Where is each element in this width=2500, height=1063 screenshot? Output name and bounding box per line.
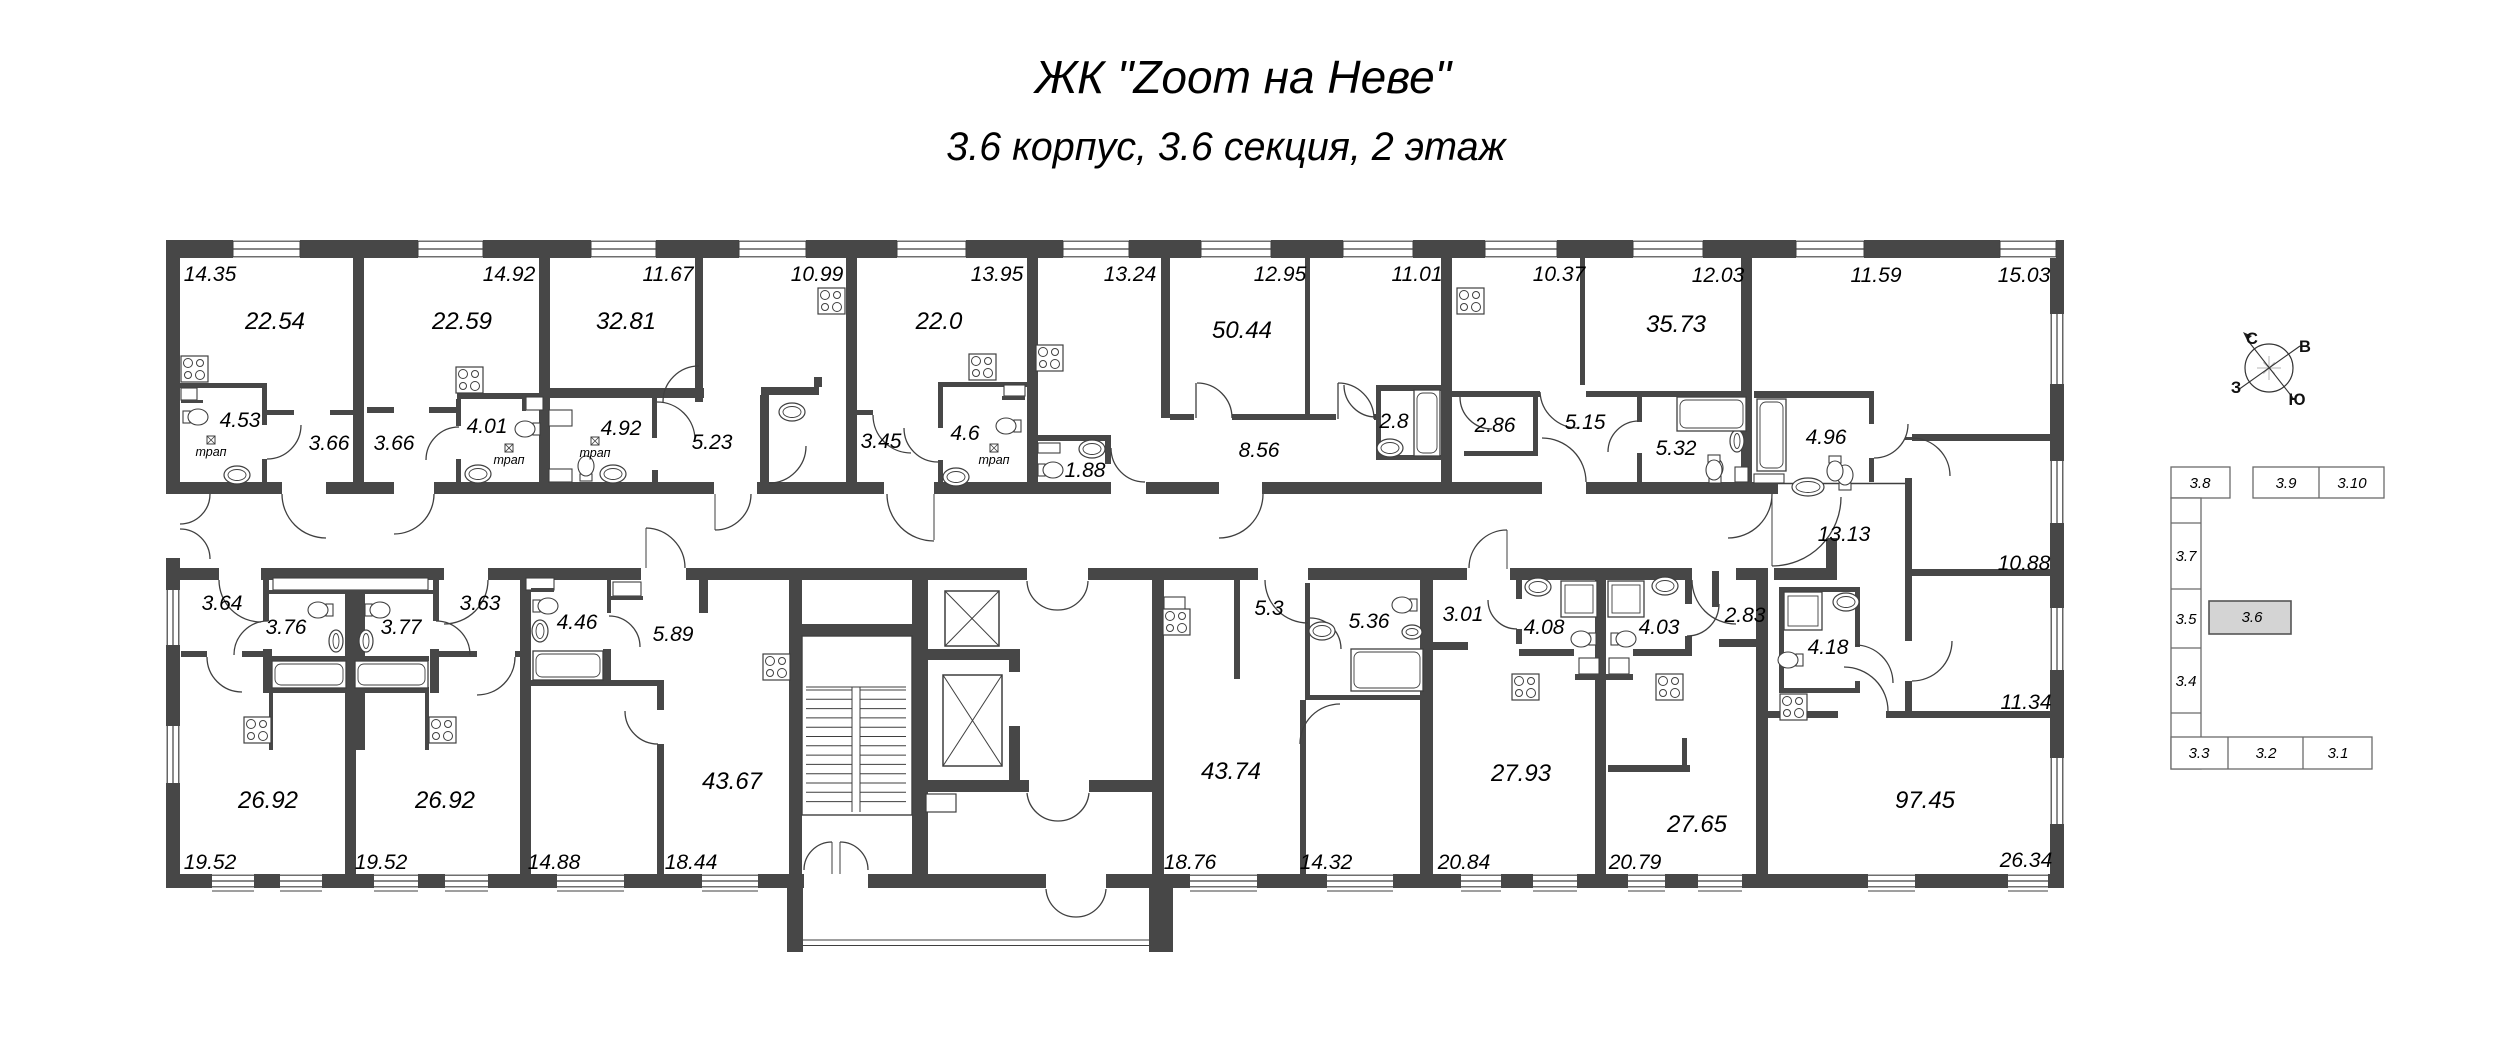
svg-text:43.74: 43.74 [1201, 758, 1261, 785]
svg-text:27.65: 27.65 [1666, 811, 1728, 838]
svg-text:трап: трап [196, 445, 227, 459]
svg-text:5.32: 5.32 [1656, 437, 1697, 460]
svg-text:4.92: 4.92 [601, 417, 642, 440]
svg-text:3.64: 3.64 [202, 592, 243, 615]
svg-text:3.3: 3.3 [2189, 745, 2211, 762]
svg-text:12.95: 12.95 [1254, 263, 1307, 286]
svg-text:12.03: 12.03 [1692, 264, 1745, 287]
svg-text:10.99: 10.99 [791, 263, 844, 286]
svg-text:3.4: 3.4 [2176, 673, 2197, 690]
svg-text:26.92: 26.92 [237, 787, 298, 814]
svg-text:22.54: 22.54 [244, 308, 305, 335]
svg-text:11.34: 11.34 [2001, 691, 2052, 714]
svg-text:32.81: 32.81 [596, 308, 656, 335]
svg-text:14.92: 14.92 [483, 263, 536, 286]
svg-text:2.8: 2.8 [1378, 410, 1409, 433]
svg-text:3.45: 3.45 [861, 430, 902, 453]
svg-text:3.6 корпус, 3.6 секция, 2 этаж: 3.6 корпус, 3.6 секция, 2 этаж [946, 125, 1507, 169]
svg-text:10.37: 10.37 [1533, 263, 1587, 286]
svg-text:18.76: 18.76 [1164, 851, 1217, 874]
svg-text:4.6: 4.6 [950, 422, 980, 445]
svg-text:Ю: Ю [2288, 391, 2305, 409]
svg-text:8.56: 8.56 [1239, 439, 1280, 462]
svg-text:3.63: 3.63 [460, 592, 501, 615]
svg-text:11.59: 11.59 [1851, 264, 1902, 287]
svg-text:43.67: 43.67 [702, 768, 764, 795]
svg-text:3.01: 3.01 [1443, 603, 1484, 626]
svg-text:14.88: 14.88 [528, 851, 581, 874]
svg-text:20.84: 20.84 [1437, 851, 1491, 874]
svg-text:трап: трап [494, 453, 525, 467]
svg-text:С: С [2246, 330, 2258, 348]
svg-text:3.1: 3.1 [2328, 745, 2349, 762]
svg-text:14.35: 14.35 [184, 263, 237, 286]
svg-text:4.46: 4.46 [557, 611, 598, 634]
svg-text:26.92: 26.92 [414, 787, 475, 814]
svg-text:3.2: 3.2 [2256, 745, 2278, 762]
svg-text:4.03: 4.03 [1639, 616, 1680, 639]
svg-text:3.77: 3.77 [381, 616, 423, 639]
svg-text:35.73: 35.73 [1646, 311, 1707, 338]
svg-text:2.86: 2.86 [1474, 414, 1516, 437]
svg-text:4.96: 4.96 [1806, 426, 1847, 449]
svg-text:19.52: 19.52 [184, 851, 237, 874]
svg-text:3.7: 3.7 [2176, 548, 2198, 565]
svg-text:4.18: 4.18 [1808, 636, 1849, 659]
svg-text:3.9: 3.9 [2276, 475, 2298, 492]
svg-text:4.53: 4.53 [220, 409, 261, 432]
svg-text:18.44: 18.44 [665, 851, 718, 874]
svg-text:11.67: 11.67 [643, 263, 695, 286]
svg-text:20.79: 20.79 [1608, 851, 1662, 874]
svg-text:трап: трап [580, 446, 611, 460]
svg-text:трап: трап [979, 453, 1010, 467]
svg-text:5.15: 5.15 [1565, 411, 1606, 434]
svg-text:13.24: 13.24 [1104, 263, 1157, 286]
svg-text:26.34: 26.34 [1999, 849, 2053, 872]
svg-text:5.89: 5.89 [653, 623, 694, 646]
svg-text:З: З [2231, 379, 2241, 397]
svg-text:5.3: 5.3 [1254, 597, 1284, 620]
svg-text:3.8: 3.8 [2190, 475, 2212, 492]
svg-text:3.6: 3.6 [2242, 609, 2264, 626]
svg-text:50.44: 50.44 [1212, 317, 1272, 344]
svg-text:27.93: 27.93 [1490, 760, 1552, 787]
svg-text:13.95: 13.95 [971, 263, 1024, 286]
svg-text:ЖК "Zoom на Неве": ЖК "Zoom на Неве" [1033, 51, 1454, 103]
svg-text:15.03: 15.03 [1998, 264, 2051, 287]
svg-text:3.66: 3.66 [374, 432, 415, 455]
svg-text:97.45: 97.45 [1895, 787, 1956, 814]
svg-text:14.32: 14.32 [1300, 851, 1353, 874]
svg-text:3.5: 3.5 [2176, 611, 2198, 628]
svg-text:19.52: 19.52 [355, 851, 408, 874]
svg-text:3.10: 3.10 [2337, 475, 2367, 492]
svg-text:В: В [2299, 338, 2311, 356]
svg-text:10.88: 10.88 [1998, 552, 2051, 575]
svg-text:3.76: 3.76 [266, 616, 307, 639]
svg-text:22.59: 22.59 [431, 308, 492, 335]
svg-text:3.66: 3.66 [309, 432, 350, 455]
svg-text:5.23: 5.23 [692, 431, 733, 454]
svg-text:22.0: 22.0 [915, 308, 963, 335]
svg-text:5.36: 5.36 [1349, 610, 1390, 633]
svg-text:4.08: 4.08 [1524, 616, 1565, 639]
svg-text:4.01: 4.01 [467, 415, 508, 438]
svg-text:11.01: 11.01 [1392, 263, 1443, 286]
svg-text:13.13: 13.13 [1818, 523, 1871, 546]
svg-text:2.83: 2.83 [1724, 604, 1766, 627]
svg-text:1.88: 1.88 [1065, 459, 1106, 482]
